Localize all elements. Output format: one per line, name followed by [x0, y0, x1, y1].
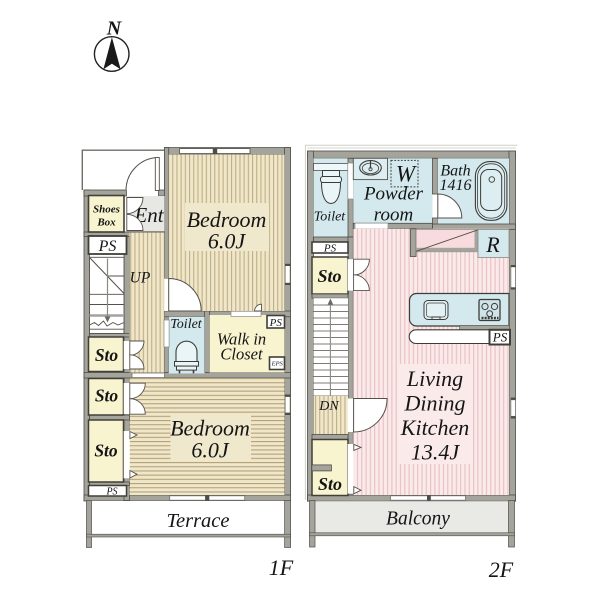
svg-text:Terrace: Terrace — [166, 510, 229, 532]
svg-text:Toilet: Toilet — [170, 317, 202, 332]
svg-text:Kitchen: Kitchen — [400, 415, 469, 440]
svg-text:PS: PS — [105, 487, 117, 498]
svg-text:Living: Living — [406, 366, 463, 391]
svg-text:Shoes: Shoes — [93, 204, 120, 216]
svg-text:Sto: Sto — [317, 266, 341, 286]
svg-text:6.0J: 6.0J — [191, 438, 230, 463]
svg-text:room: room — [374, 205, 413, 226]
svg-text:Dining: Dining — [403, 391, 465, 416]
svg-text:Sto: Sto — [318, 474, 342, 494]
svg-text:PS: PS — [323, 243, 337, 255]
svg-text:Sto: Sto — [95, 386, 119, 406]
svg-text:13.4J: 13.4J — [411, 440, 461, 465]
svg-text:W: W — [396, 162, 417, 187]
svg-text:UP: UP — [130, 270, 151, 287]
svg-text:Balcony: Balcony — [386, 509, 450, 530]
svg-text:R: R — [485, 232, 500, 257]
svg-text:2F: 2F — [489, 557, 514, 582]
svg-text:EPS: EPS — [271, 361, 284, 368]
svg-text:Sto: Sto — [94, 441, 118, 461]
svg-text:PS: PS — [492, 330, 508, 345]
svg-text:Sto: Sto — [95, 345, 119, 365]
svg-text:DN: DN — [318, 399, 339, 414]
svg-text:Box: Box — [96, 217, 116, 229]
svg-text:1F: 1F — [269, 555, 294, 580]
svg-text:Toilet: Toilet — [314, 210, 346, 225]
svg-text:PS: PS — [269, 317, 283, 329]
svg-text:1416: 1416 — [440, 177, 472, 194]
svg-text:6.0J: 6.0J — [208, 229, 247, 254]
svg-text:Closet: Closet — [220, 345, 263, 364]
svg-text:PS: PS — [98, 238, 117, 255]
